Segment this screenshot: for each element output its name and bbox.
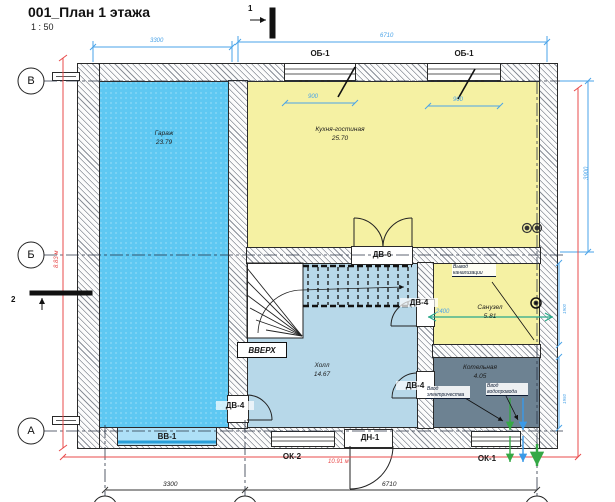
window-ob1-right [428,64,500,80]
note-sewer: Вывод канализации [452,264,496,277]
section-label-1: 1 [248,4,252,13]
label-boiler: Котельная 4.05 [448,364,512,382]
label-hall: Холл 14.67 [290,362,354,380]
section-label-2: 2 [11,295,15,304]
label-ok2: ОК-2 [272,452,312,461]
dim-top-right: 6710 [380,33,393,39]
label-kitchen: Кухня-гостиная 25.70 [295,126,385,144]
vent-grille-top [53,73,79,80]
hall-name: Холл [315,362,330,369]
window-ok2 [272,432,334,446]
label-garage: Гараж 23.79 [128,130,200,148]
dim-bathroom-width: 2400 [436,309,449,315]
stair-winder-area[interactable] [247,263,303,338]
label-ob1-right: ОБ-1 [444,49,484,58]
note-electricity: Ввод электричества [426,386,470,399]
wall-bath-boiler [433,345,540,357]
dim-bottom-left: 3300 [163,481,177,488]
dim-window-left: 900 [308,94,318,100]
label-dv6: ДВ-6 [362,250,402,259]
section-marker-top [250,8,275,38]
label-dv4-bath: ДВ-4 [400,298,438,307]
bathroom-area: 5.81 [484,313,497,320]
dim-bathroom-height: 1900 [562,304,567,314]
label-vv1: ВВ-1 [147,432,187,441]
label-ok1: ОК-1 [467,454,507,463]
axis-label-a: А [18,425,44,437]
label-dn1: ДН-1 [350,433,390,442]
view-scale: 1 : 50 [31,22,54,32]
axis-label-v: В [18,75,44,87]
garage-name: Гараж [155,130,174,137]
window-ob1-left [285,64,355,80]
wall-hall-right [418,263,433,428]
axis-label-b: Б [18,249,44,261]
note-water: Ввод водопровода [486,383,528,396]
vent-grille-bottom [53,417,79,424]
kitchen-name: Кухня-гостиная [315,126,364,133]
label-bathroom: Санузел 5.81 [462,304,518,322]
garage-area: 23.79 [156,139,172,146]
dim-boiler-height: 1950 [562,394,567,404]
hall-area: 14.67 [314,371,330,378]
stairs-up-label: ВВЕРХ [237,342,287,358]
dim-right-span: 3900 [584,167,590,180]
label-dv4-garage: ДВ-4 [216,401,254,410]
window-ok1 [472,432,520,446]
kitchen-area: 25.70 [332,135,348,142]
bathroom-name: Санузел [477,304,502,311]
label-ob1-left: ОБ-1 [300,49,340,58]
boiler-area: 4.05 [474,373,487,380]
dim-bottom-right: 6710 [382,481,396,488]
wall-left [78,64,99,448]
dim-window-right: 900 [453,97,463,103]
wall-garage-partition [229,81,247,428]
boiler-name: Котельная [463,364,497,371]
dim-overall-height: 8.83 м [54,251,60,268]
view-title: 001_План 1 этажа [28,4,150,20]
dim-overall-width: 10.91 м [328,459,349,465]
dim-top-left: 3300 [150,38,163,44]
floor-plan-canvas[interactable]: 001_План 1 этажа 1 : 50 [0,0,615,502]
room-kitchen-living[interactable] [247,81,540,248]
wall-right [540,64,557,448]
